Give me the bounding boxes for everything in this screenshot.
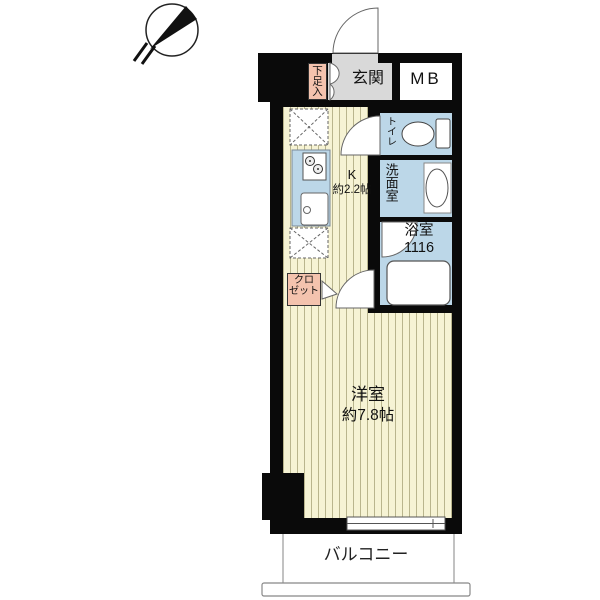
label-kitchen-size: 約2.2帖 (322, 184, 382, 196)
label-shoe-storage: 下足入 (311, 65, 322, 97)
label-bathroom: 浴室 (388, 224, 450, 239)
balcony-outline (262, 534, 470, 596)
pillar-bottom-left-overlay (262, 473, 304, 520)
pillar-top-left (258, 53, 284, 102)
label-western-room: 洋室 (303, 386, 433, 404)
north-compass-icon (134, 4, 198, 64)
label-closet-line1: クロ (287, 276, 321, 287)
label-toilet: トイレ (384, 116, 395, 146)
label-washroom: 洗面室 (384, 163, 398, 202)
label-closet-line2: ゼット (287, 287, 321, 298)
floor-plan: 玄関 下足入 MB トイレ 洗面室 浴室 1116 K 約2.2帖 クロ ゼット… (0, 0, 600, 600)
label-bathroom-size: 1116 (388, 241, 450, 256)
label-kitchen: K (330, 168, 374, 182)
balcony-railing (262, 583, 470, 596)
label-western-room-size: 約7.8帖 (303, 408, 433, 424)
label-meter-box: MB (400, 70, 452, 88)
label-balcony: バルコニー (281, 546, 451, 564)
label-genkan: 玄関 (344, 71, 392, 88)
label-closet: クロ ゼット (287, 276, 321, 297)
entrance-door-arc (333, 8, 378, 53)
